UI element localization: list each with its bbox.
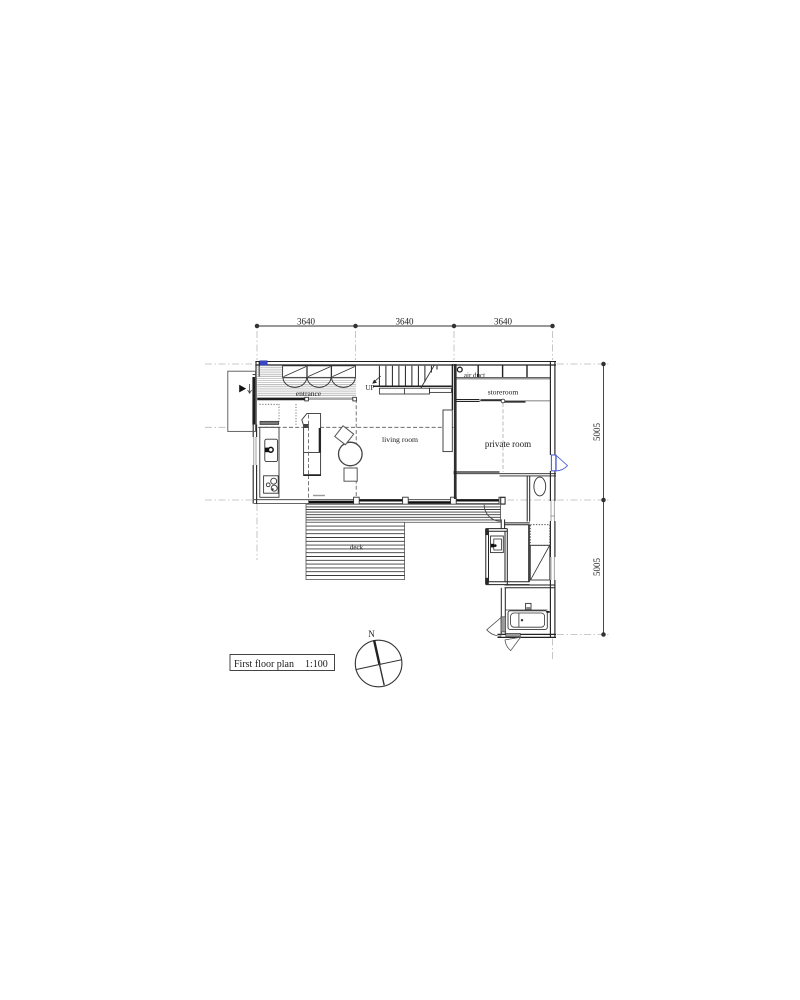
svg-text:storeroom: storeroom bbox=[488, 388, 519, 397]
svg-text:5005: 5005 bbox=[592, 423, 602, 442]
svg-text:deck: deck bbox=[350, 544, 364, 552]
svg-text:air duct: air duct bbox=[464, 372, 485, 380]
svg-text:3640: 3640 bbox=[396, 316, 415, 326]
svg-text:5005: 5005 bbox=[592, 558, 602, 577]
svg-text:entrance: entrance bbox=[296, 389, 322, 398]
svg-text:3640: 3640 bbox=[494, 316, 513, 326]
svg-text:N: N bbox=[368, 629, 375, 639]
svg-text:First floor plan: First floor plan bbox=[234, 659, 294, 670]
svg-text:3640: 3640 bbox=[297, 316, 316, 326]
svg-text:1:100: 1:100 bbox=[305, 659, 328, 670]
svg-text:private room: private room bbox=[485, 439, 531, 449]
svg-text:UP: UP bbox=[366, 384, 375, 392]
svg-text:living room: living room bbox=[382, 435, 418, 444]
